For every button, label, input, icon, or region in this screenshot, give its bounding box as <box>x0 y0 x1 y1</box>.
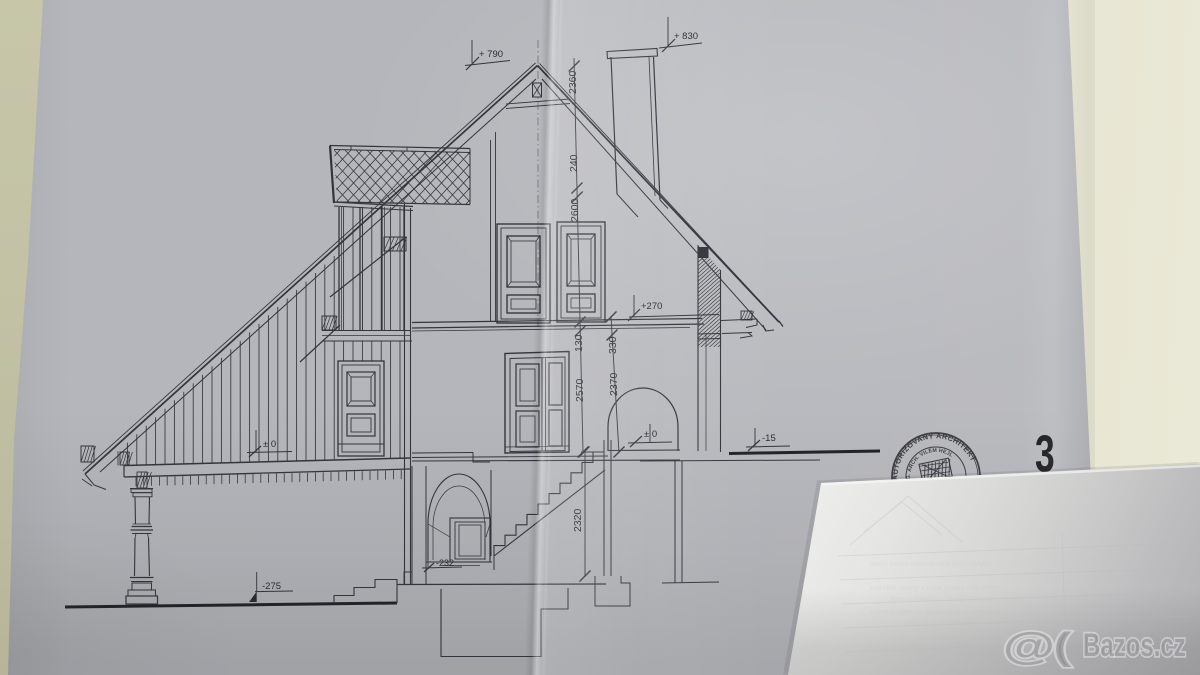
svg-text:zmena dokonceni stavby pred do: zmena dokonceni stavby pred dokoncenim <box>890 596 1023 603</box>
svg-text:podkrovi a b c schodiste: podkrovi a b c schodiste <box>905 620 980 627</box>
svg-text:stavebni upravy a nova zprava: stavebni upravy a nova zprava Dokument <box>870 585 999 592</box>
svg-text:lorem ipsum rekonstrukce domu: lorem ipsum rekonstrukce domu vykres <box>870 561 992 568</box>
svg-text:objekt bydleni by uprava strec: objekt bydleni by uprava strechy vestavb… <box>870 609 1000 616</box>
